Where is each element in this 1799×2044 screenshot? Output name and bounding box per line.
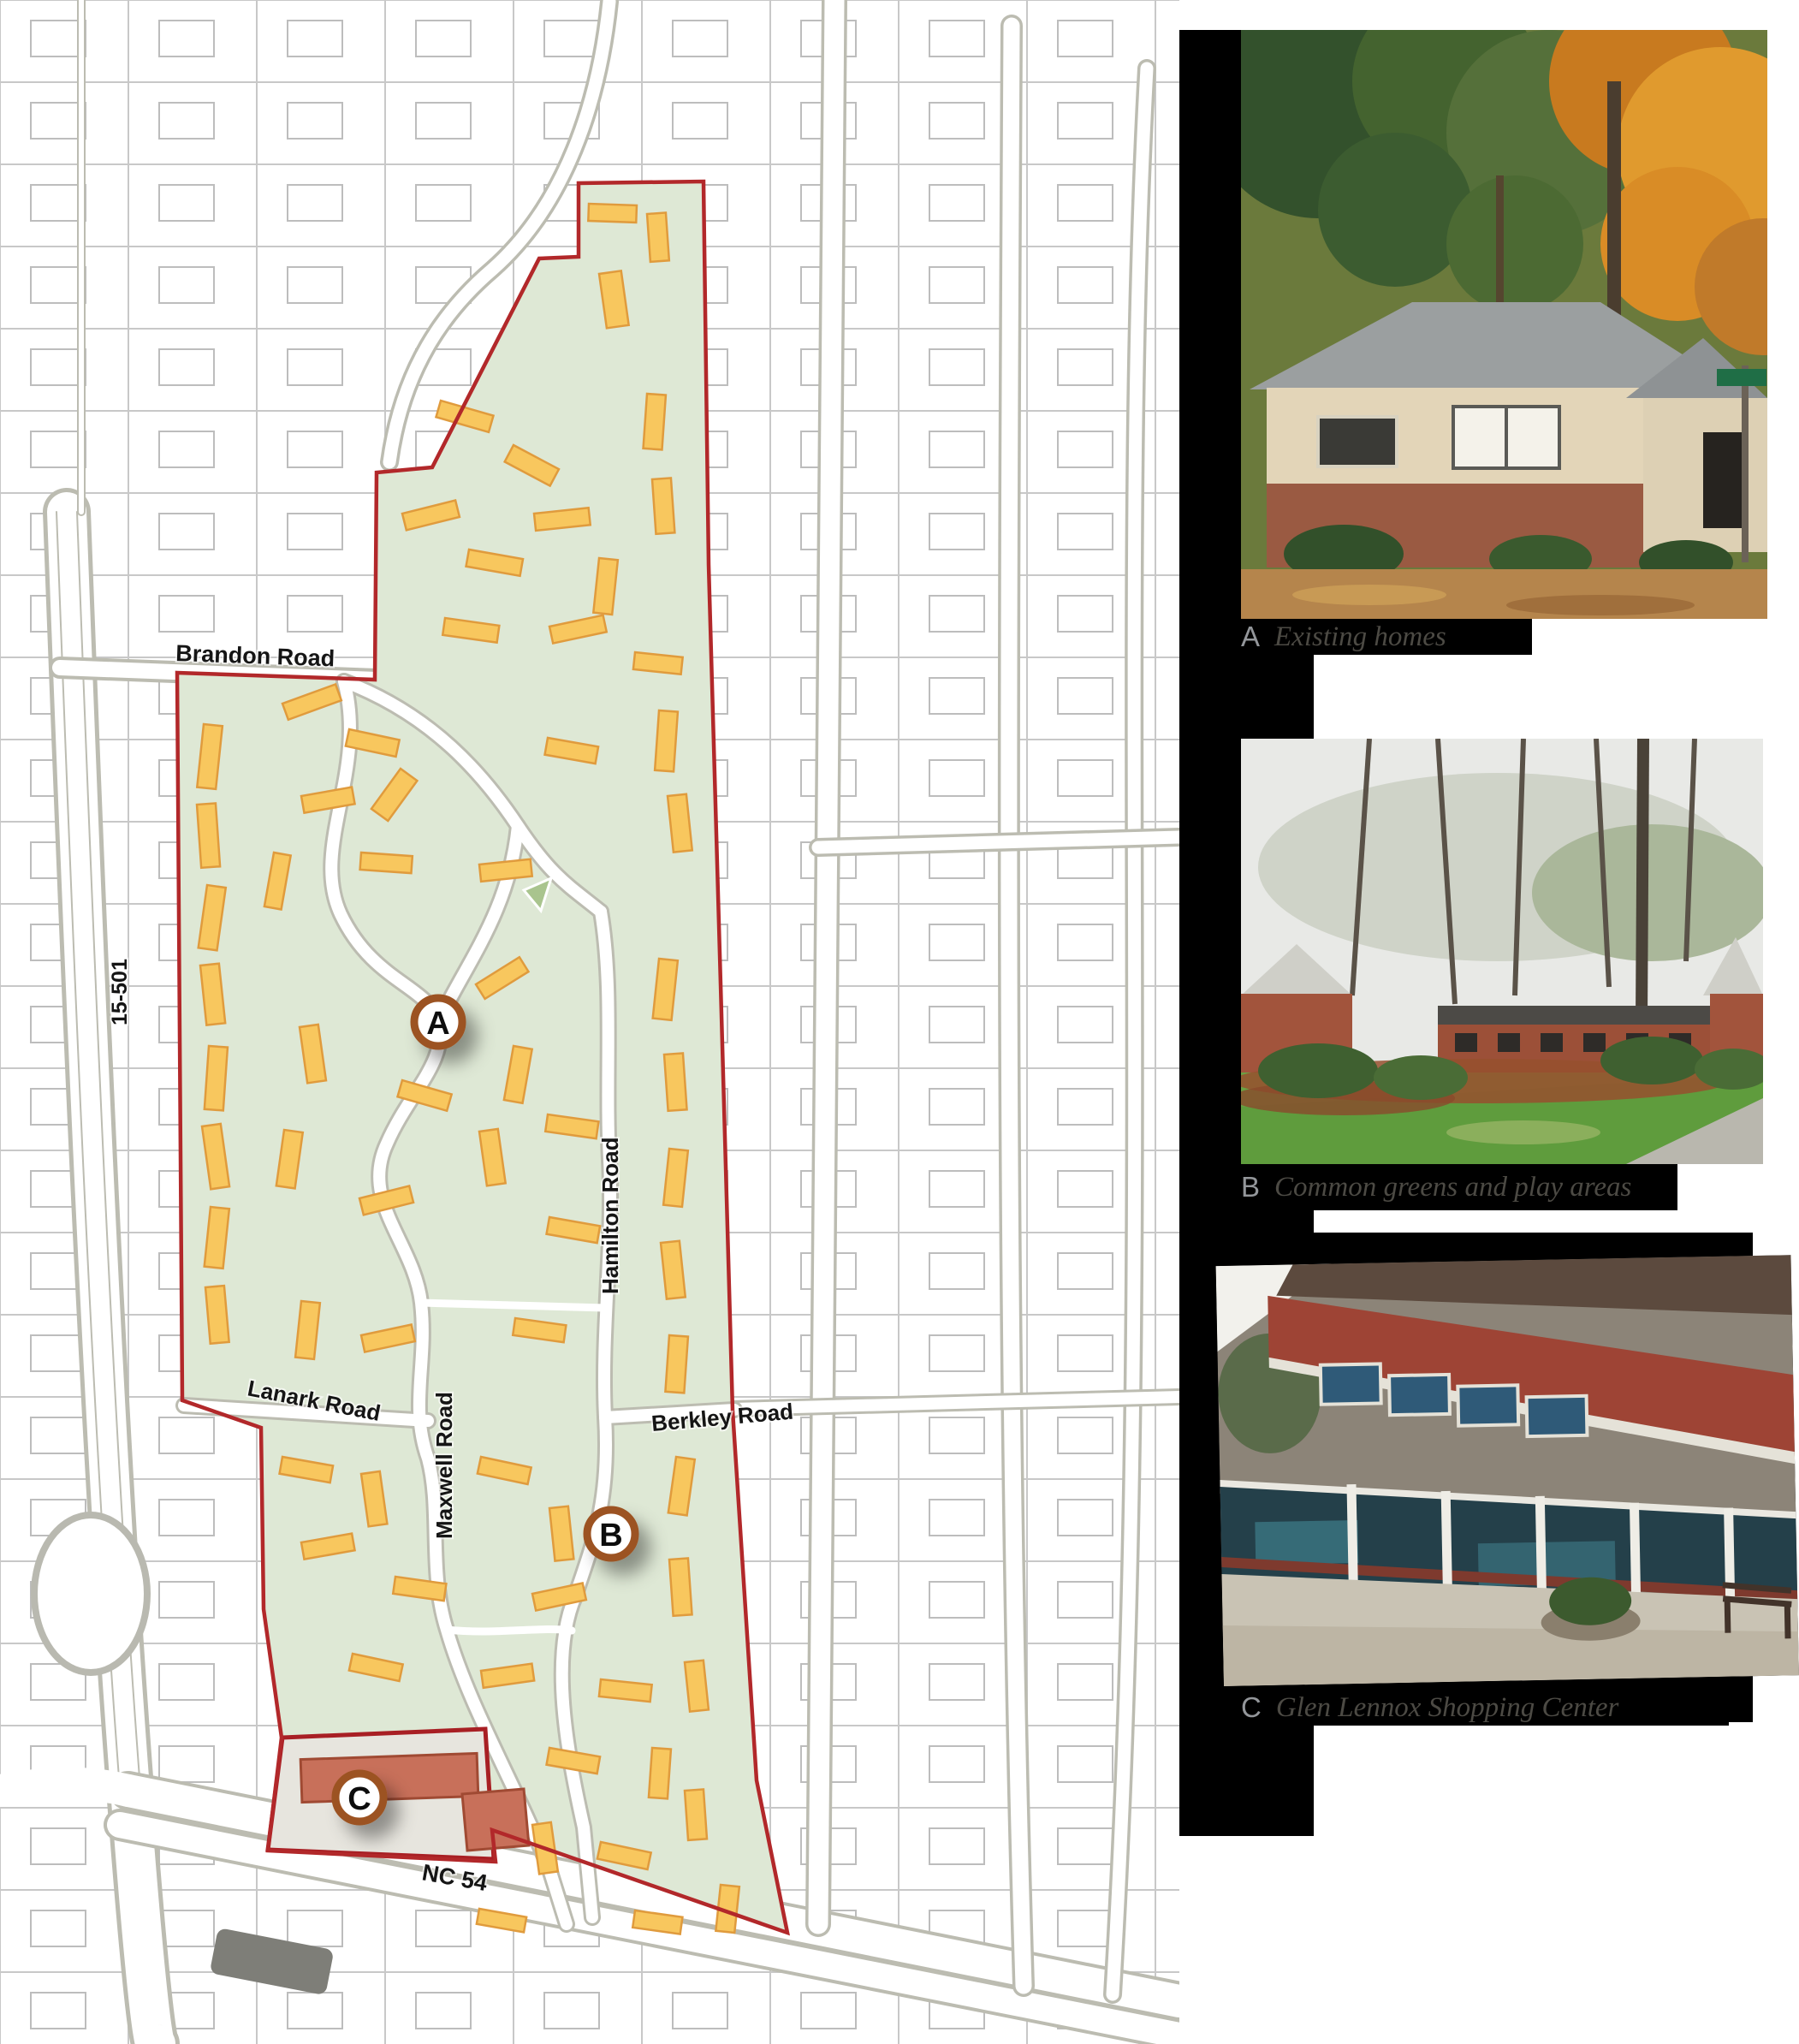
neighborhood-map: Brandon Road 15-501 Lanark Road Maxwell … — [0, 0, 1179, 2044]
caption-bar-a: A Existing homes — [1179, 619, 1532, 655]
marker-a-letter: A — [426, 1006, 449, 1042]
marker-a: A — [414, 998, 462, 1046]
marker-c-letter: C — [347, 1781, 371, 1817]
photo-existing-homes — [1241, 30, 1767, 619]
caption-text-a: Existing homes — [1274, 621, 1446, 653]
caption-letter-a: A — [1241, 621, 1261, 653]
road-label-maxwell: Maxwell Road — [431, 1392, 457, 1539]
road-label-15-501: 15-501 — [108, 959, 132, 1025]
photo-common-greens — [1241, 739, 1763, 1164]
marker-b: B — [587, 1510, 635, 1558]
document-page: Brandon Road 15-501 Lanark Road Maxwell … — [0, 0, 1799, 2044]
caption-bar-c: C Glen Lennox Shopping Center — [1179, 1690, 1729, 1726]
road-label-hamilton: Hamilton Road — [597, 1138, 623, 1294]
caption-letter-b: B — [1241, 1171, 1261, 1203]
shopping-building-main — [300, 1753, 478, 1802]
caption-text-b: Common greens and play areas — [1274, 1172, 1631, 1203]
photo-shopping-center — [1216, 1255, 1799, 1686]
marker-c: C — [335, 1774, 383, 1821]
caption-text-c: Glen Lennox Shopping Center — [1276, 1692, 1619, 1724]
caption-letter-c: C — [1241, 1691, 1262, 1724]
marker-b-letter: B — [599, 1518, 622, 1554]
caption-bar-b: B Common greens and play areas — [1179, 1164, 1677, 1210]
